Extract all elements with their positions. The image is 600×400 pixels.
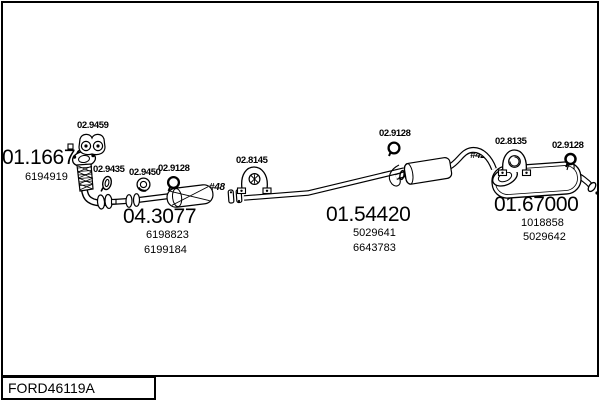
part-ref: 6194919 — [25, 171, 68, 183]
part-ref: 6198823 — [146, 229, 189, 241]
part-code-centre-silencer: 01.54420 — [326, 203, 410, 227]
diagram-code-box: FORD46119A — [1, 376, 156, 400]
fitting-code: 02.8145 — [236, 155, 268, 166]
part-ref: 6199184 — [144, 244, 187, 256]
fitting-code: 02.9450 — [129, 167, 161, 178]
part-ref: 6643783 — [353, 242, 396, 254]
pipe-size-annotation: #42 — [470, 150, 486, 161]
part-code-front-pipe: 01.16670 — [2, 146, 86, 170]
part-ref: 5029642 — [523, 231, 566, 243]
part-code-rear-silencer: 01.67000 — [494, 193, 578, 217]
fitting-code: 02.9128 — [158, 163, 190, 174]
part-code-catalyst: 04.3077 — [123, 205, 196, 229]
part-ref: 5029641 — [353, 227, 396, 239]
fitting-code: 02.8135 — [495, 136, 527, 147]
fitting-code: 02.9435 — [93, 164, 125, 175]
fitting-code: 02.9128 — [552, 140, 584, 151]
fitting-code: 02.9459 — [77, 120, 109, 131]
fitting-code: 02.9128 — [379, 128, 411, 139]
part-ref: 1018858 — [521, 217, 564, 229]
diagram-code: FORD46119A — [8, 380, 95, 396]
exhaust-diagram-page: 01.16670 6194919 04.3077 6198823 6199184… — [0, 0, 600, 400]
diagram-frame — [1, 1, 599, 377]
pipe-size-annotation: #48 — [209, 182, 225, 193]
